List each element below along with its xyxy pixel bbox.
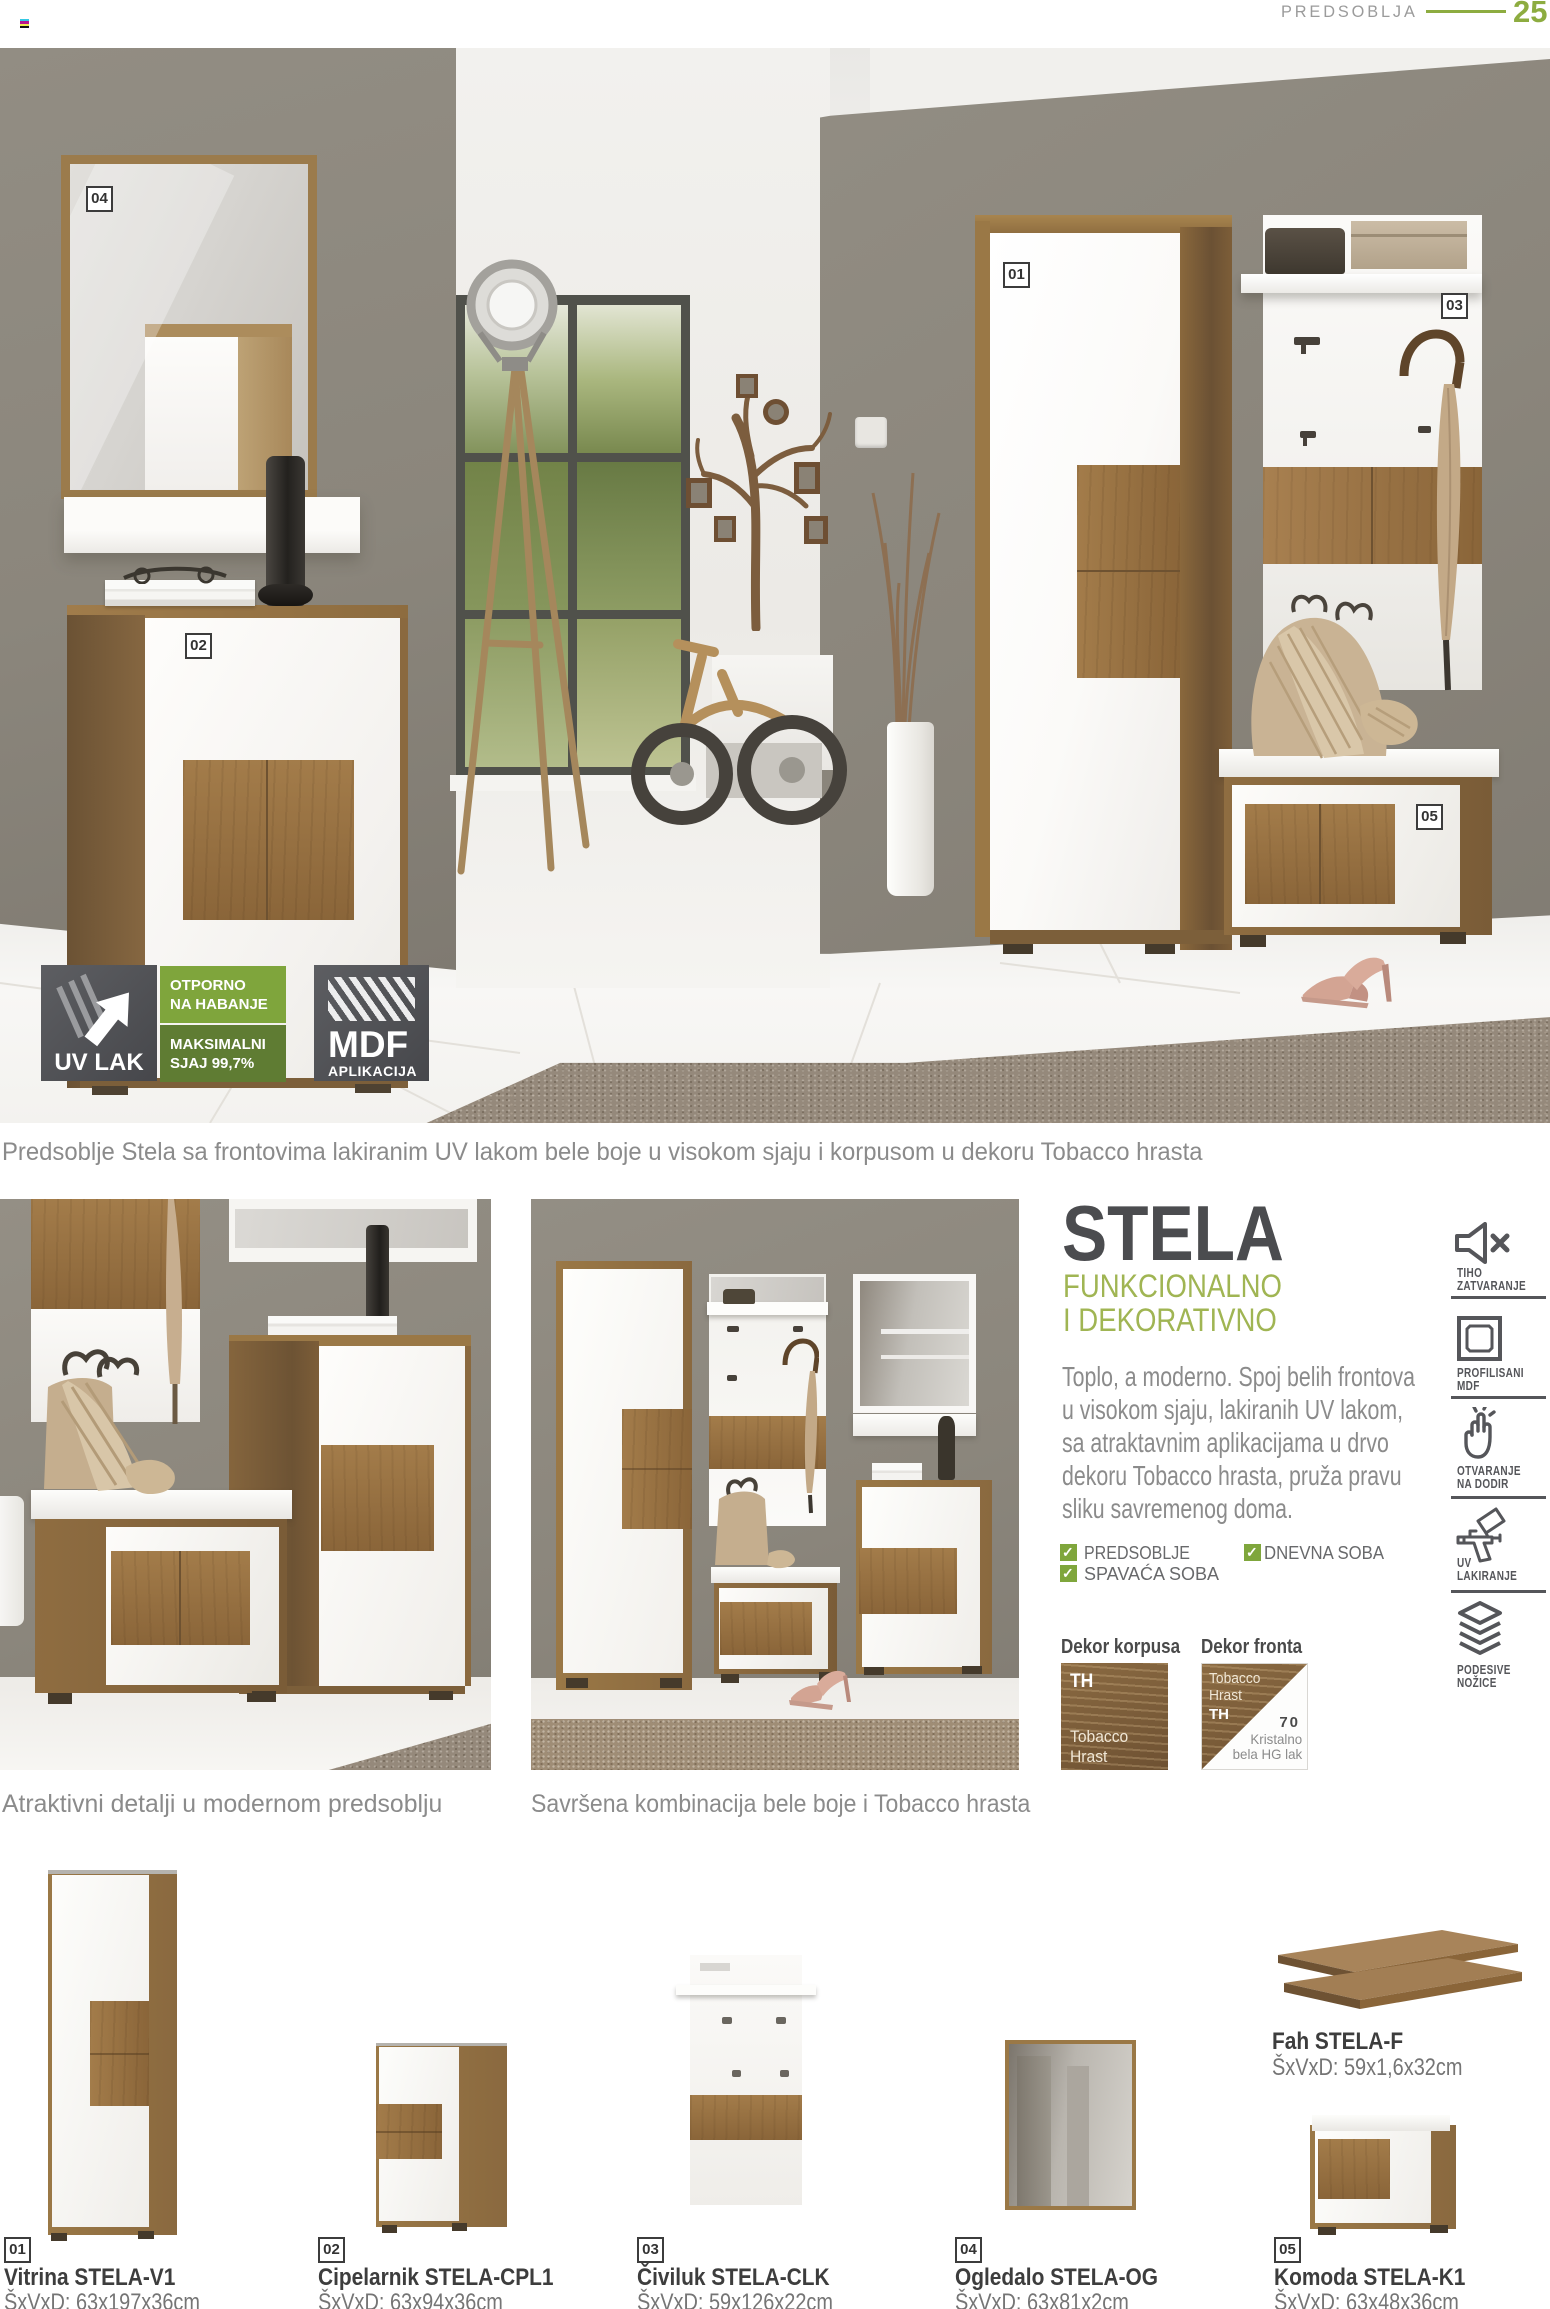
svg-text:UV LAK: UV LAK (54, 1049, 144, 1076)
